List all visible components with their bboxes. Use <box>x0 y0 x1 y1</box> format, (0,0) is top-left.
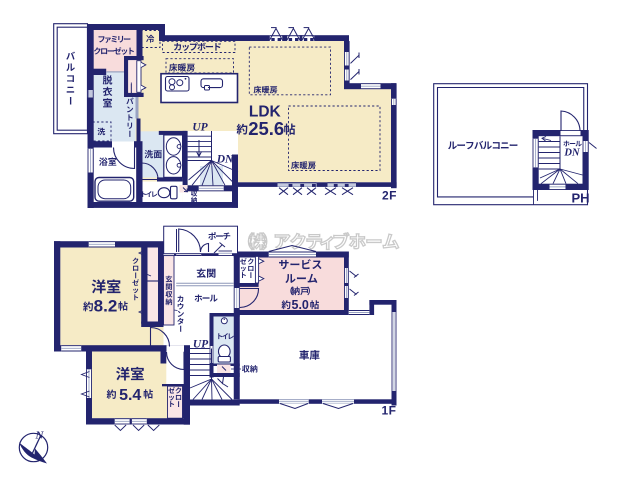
svg-text:N: N <box>35 430 45 442</box>
svg-text:UP: UP <box>193 339 209 351</box>
svg-text:DN: DN <box>563 148 580 159</box>
svg-text:5.0: 5.0 <box>292 298 309 312</box>
svg-text:5.4: 5.4 <box>119 387 141 404</box>
svg-text:2F: 2F <box>382 189 397 203</box>
svg-text:8.2: 8.2 <box>94 296 118 315</box>
svg-text:DN: DN <box>216 153 234 165</box>
svg-text:UP: UP <box>192 122 208 134</box>
svg-text:1F: 1F <box>381 404 396 418</box>
svg-text:25.6: 25.6 <box>248 118 284 139</box>
svg-text:PH: PH <box>571 190 589 205</box>
